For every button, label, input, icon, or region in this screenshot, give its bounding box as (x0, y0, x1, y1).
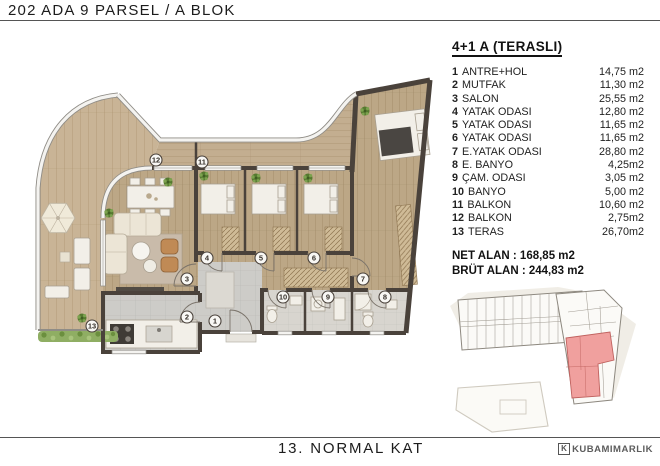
room-name: ÇAM. ODASI (462, 172, 526, 184)
room-list-item: 12BALKON 2,75m2 (452, 212, 644, 225)
shelf (334, 298, 345, 320)
room-list-item: 1ANTRE+HOL 14,75 m2 (452, 66, 644, 79)
room-area: 3,05 m2 (605, 172, 644, 185)
room-number-label: 5 (259, 254, 263, 263)
room-number-label: 3 (185, 275, 189, 284)
armchair (161, 257, 178, 272)
room-list: 1ANTRE+HOL 14,75 m2 2MUTFAK 11,30 m2 3SA… (452, 66, 644, 239)
room-number-label: 8 (383, 293, 387, 302)
room-list-item: 2MUTFAK 11,30 m2 (452, 79, 644, 92)
sofa (114, 213, 161, 236)
entry-step (226, 334, 256, 342)
net-area: NET ALAN : 168,85 m2 (452, 249, 644, 264)
room-number: 12 (452, 212, 464, 224)
room-list-item: 9ÇAM. ODASI 3,05 m2 (452, 172, 644, 185)
page-title: 202 ADA 9 PARSEL / A BLOK (8, 2, 236, 19)
room-list-item: 10BANYO 5,00 m2 (452, 186, 644, 199)
room-area: 2,75m2 (608, 212, 644, 225)
room-name: BALKON (467, 199, 511, 211)
side-table (60, 252, 70, 262)
header-divider (0, 20, 660, 21)
room-area: 12,80 m2 (599, 106, 644, 119)
balcony-band-floor (150, 94, 356, 170)
room-list-item: 8E. BANYO 4,25m2 (452, 159, 644, 172)
room-number: 9 (452, 172, 458, 184)
room-number-label: 1 (213, 317, 217, 326)
unit-type-title: 4+1 A (TERASLI) (452, 39, 562, 57)
room-name: E. BANYO (462, 159, 513, 171)
armchair (161, 239, 178, 254)
area-totals: NET ALAN : 168,85 m2 BRÜT ALAN : 244,83 … (452, 249, 644, 279)
wardrobe (273, 227, 290, 251)
room-number-label: 7 (361, 275, 365, 284)
room-name: BALKON (468, 212, 512, 224)
floorplan-sheet: { "header": { "title": "202 ADA 9 PARSEL… (0, 0, 660, 466)
room-number: 2 (452, 79, 458, 91)
kuba-logo-icon: K (558, 443, 570, 455)
room-area: 25,55 m2 (599, 93, 644, 106)
lounger (74, 268, 90, 290)
room-area: 11,65 m2 (600, 119, 644, 132)
footer-divider (0, 437, 660, 438)
wardrobe (222, 227, 239, 251)
room-name: TERAS (468, 226, 504, 238)
room-number: 11 (452, 199, 463, 211)
room-area: 4,25m2 (608, 159, 644, 172)
dressing-wardrobe (284, 268, 348, 287)
room-number-label: 13 (88, 322, 96, 331)
floor-title: 13. NORMAL KAT (278, 440, 424, 457)
hedge (38, 331, 118, 342)
room-area: 26,70m2 (602, 226, 644, 239)
room-list-item: 5YATAK ODASI 11,65 m2 (452, 119, 644, 132)
toilet (267, 310, 277, 323)
room-area: 11,30 m2 (600, 79, 644, 92)
room-legend: 4+1 A (TERASLI) 1ANTRE+HOL 14,75 m2 2MUT… (452, 38, 644, 279)
room-list-item: 6YATAK ODASI 11,65 m2 (452, 132, 644, 145)
room-number-label: 12 (152, 156, 160, 165)
room-area: 10,60 m2 (599, 199, 644, 212)
lounger (74, 238, 90, 264)
room-number-label: 10 (279, 293, 287, 302)
room-number: 6 (452, 132, 458, 144)
room-name: MUTFAK (462, 79, 506, 91)
room-number: 8 (452, 159, 458, 171)
entry-mat (206, 272, 234, 308)
coffee-table (132, 242, 150, 260)
room-name: SALON (462, 93, 499, 105)
room-number: 5 (452, 119, 458, 131)
room-list-item: 13TERAS 26,70m2 (452, 226, 644, 239)
room-area: 11,65 m2 (600, 132, 644, 145)
kitchen-furniture (106, 320, 197, 348)
room-name: ANTRE+HOL (462, 66, 527, 78)
room-list-item: 7E.YATAK ODASI 28,80 m2 (452, 146, 644, 159)
washbasin (290, 296, 302, 305)
room-name: YATAK ODASI (462, 119, 532, 131)
room-number-label: 9 (326, 293, 330, 302)
room-area: 5,00 m2 (605, 186, 644, 199)
room-number-label: 11 (198, 158, 206, 167)
wardrobe (325, 227, 342, 251)
bed-throw (379, 127, 414, 157)
room-area: 28,80 m2 (599, 146, 644, 159)
room-number-label: 6 (312, 254, 316, 263)
lounger (45, 286, 69, 298)
toilet (363, 315, 373, 327)
room-list-item: 3SALON 25,55 m2 (452, 93, 644, 106)
gross-area: BRÜT ALAN : 244,83 m2 (452, 264, 644, 279)
room-number: 10 (452, 186, 464, 198)
room-number: 13 (452, 226, 464, 238)
room-number: 1 (452, 66, 458, 78)
room-number: 4 (452, 106, 458, 118)
pool-outline (456, 382, 548, 432)
brand-name: KUBAMIMARLIK (572, 444, 653, 455)
room-name: YATAK ODASI (462, 106, 532, 118)
site-key-plan (450, 287, 636, 432)
room-number-label: 2 (185, 313, 189, 322)
room-number: 7 (452, 146, 458, 158)
room-area: 14,75 m2 (599, 66, 644, 79)
room-name: E.YATAK ODASI (462, 146, 542, 158)
room-number: 3 (452, 93, 458, 105)
room-list-item: 11BALKON 10,60 m2 (452, 199, 644, 212)
room-list-item: 4YATAK ODASI 12,80 m2 (452, 106, 644, 119)
room-name: YATAK ODASI (462, 132, 532, 144)
brand-logo: K KUBAMIMARLIK (558, 443, 653, 455)
room-name: BANYO (468, 186, 506, 198)
